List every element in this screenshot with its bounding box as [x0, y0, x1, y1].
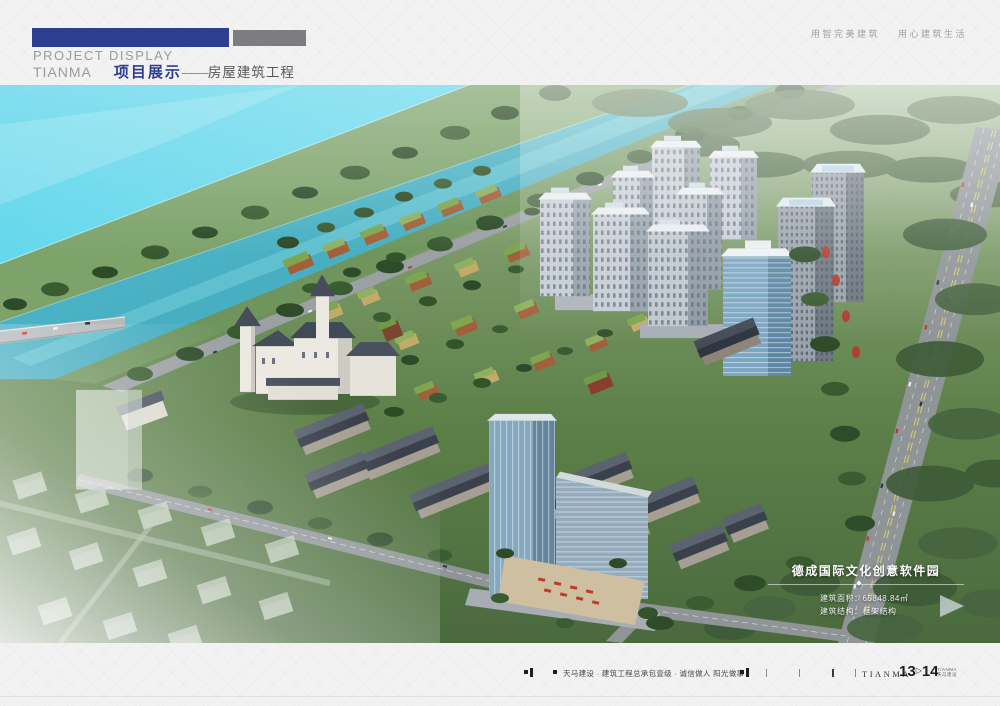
- caption-divider: ◆: [768, 584, 964, 585]
- footer-divider-2: [799, 669, 800, 677]
- footer-company-line: 天马建设 · 建筑工程总承包壹级 · 诚信做人 阳光做事: [563, 668, 744, 679]
- footer-divider-1: [766, 669, 767, 677]
- brand-name: TIANMA: [33, 64, 92, 80]
- page-footer: 天马建设 · 建筑工程总承包壹级 · 诚信做人 阳光做事 TIANMA 13▷1…: [0, 660, 1000, 690]
- section-title-cn: 项目展示: [114, 64, 182, 81]
- footer-brand-small-cn: 天马建设: [937, 672, 957, 677]
- arrow-right-icon: [940, 595, 964, 617]
- header-bar-gray: [233, 30, 306, 46]
- page-current: 13: [899, 663, 916, 680]
- slogan-part1: 用智完美建筑: [811, 29, 880, 39]
- footer-divider-4: [855, 669, 856, 677]
- diamond-icon: ◆: [856, 579, 861, 587]
- page-numbers: 13▷14: [899, 663, 939, 680]
- project-title: 德成国际文化创意软件园: [768, 562, 964, 579]
- section-subtitle: 房屋建筑工程: [208, 65, 295, 80]
- header-title-line: TIANMA项目展示——房屋建筑工程: [33, 61, 295, 82]
- corporate-slogan: 用智完美建筑用心建筑生活: [793, 27, 967, 40]
- slogan-part2: 用心建筑生活: [898, 29, 967, 39]
- aerial-rendering: [0, 85, 1000, 643]
- project-caption: 德成国际文化创意软件园 ◆ 建筑面积：65848.84㎡ 建筑结构：框架结构: [768, 562, 964, 618]
- footer-square-icon: [553, 668, 557, 677]
- brochure-page: PROJECT DISPLAY TIANMA项目展示——房屋建筑工程 用智完美建…: [0, 0, 1000, 706]
- footer-mark-right: [740, 668, 749, 677]
- title-dash: ——: [182, 64, 208, 80]
- footer-brand-small: TIANMA 天马建设: [937, 667, 957, 677]
- footer-rule: [0, 696, 1000, 697]
- footer-mark-left: [524, 668, 533, 677]
- footer-divider-3: [832, 669, 834, 677]
- header-bar-blue: [32, 28, 229, 47]
- haze-right: [520, 85, 1000, 344]
- sketch-fade: [0, 324, 440, 643]
